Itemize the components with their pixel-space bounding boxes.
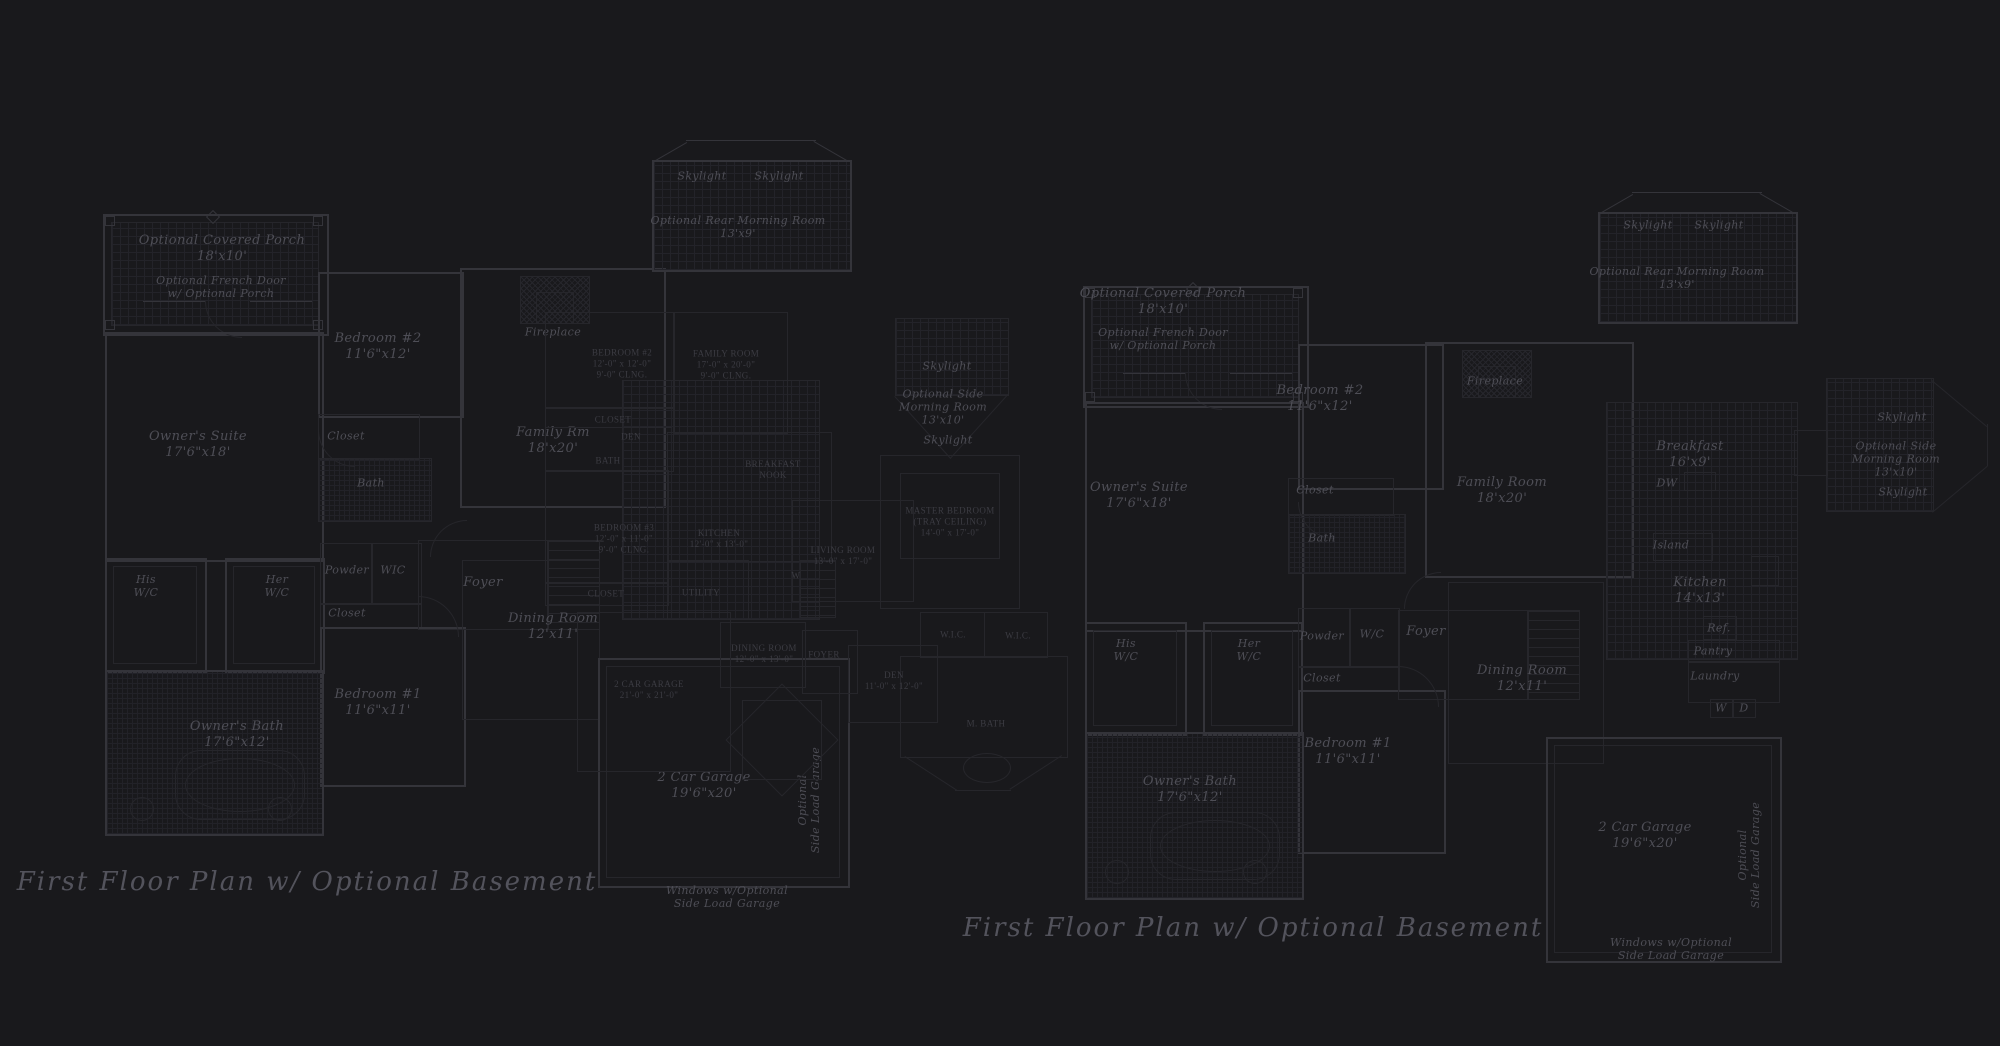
left-side-morning-room-label: Optional Side Morning Room 13'x10' <box>899 388 987 427</box>
left-porch-post <box>105 216 115 226</box>
right-covered-porch-label: Optional Covered Porch 18'x10' <box>1080 286 1247 318</box>
overlay-garage-label: 2 CAR GARAGE 21'-0" x 21'-0" <box>614 679 684 701</box>
overlay-wall <box>984 612 985 656</box>
left-toilet-fixture <box>130 797 154 821</box>
left-wic-label: WIC <box>380 564 405 577</box>
door-arc <box>1404 572 1441 609</box>
overlay-washer-label: W <box>792 571 801 582</box>
overlay-dining-room-label: DINING ROOM 12'-0" x 13'-0" <box>731 643 797 665</box>
right-rear-morning-room-label: Optional Rear Morning Room 13'x9' <box>1589 265 1764 291</box>
right-washer-label: W <box>1715 702 1727 715</box>
right-bedroom2-outline <box>1298 344 1444 490</box>
left-rear-morning-room-label: Optional Rear Morning Room 13'x9' <box>650 214 825 240</box>
right-skylight-label: Skylight <box>1694 219 1743 232</box>
right-side-skylight-label: Skylight <box>1878 486 1927 499</box>
overlay-breakfast-nook-label: BREAKFAST NOOK <box>745 459 800 481</box>
right-breakfast-label: Breakfast 16'x9' <box>1656 439 1723 471</box>
left-skylight-label: Skylight <box>754 170 803 183</box>
left-porch-post <box>105 320 115 330</box>
right-side-skylight-label: Skylight <box>1877 411 1926 424</box>
door-arc <box>430 520 467 557</box>
overlay-wic-label: W.I.C. <box>940 630 966 641</box>
right-pantry-cabinet <box>1751 556 1779 586</box>
left-french-door-label: Optional French Door w/ Optional Porch <box>156 274 286 300</box>
left-morning-room-top-wall <box>686 140 816 141</box>
right-bedroom1-outline <box>1298 690 1446 854</box>
right-dishwasher <box>1684 472 1716 491</box>
right-skylight-label: Skylight <box>1623 219 1672 232</box>
right-french-door-label: Optional French Door w/ Optional Porch <box>1098 326 1228 352</box>
right-pantry-label: Pantry <box>1694 645 1733 658</box>
left-side-skylight-label: Skylight <box>922 360 971 373</box>
overlay-garden-tub <box>963 753 1011 783</box>
overlay-wall <box>545 427 672 428</box>
overlay-bath-label: BATH <box>595 456 620 467</box>
overlay-den-label: DEN 11'-0" x 12'-0" <box>865 670 923 692</box>
left-covered-porch-label: Optional Covered Porch 18'x10' <box>139 233 306 265</box>
right-porch-post <box>1293 288 1303 298</box>
overlay-closet-label: CLOSET <box>595 415 631 426</box>
right-toilet-fixture <box>1243 860 1267 884</box>
right-kitchen-label: Kitchen 14'x13' <box>1673 575 1727 607</box>
right-owners-bath-label: Owner's Bath 17'6"x12' <box>1143 774 1237 806</box>
right-powder-label: Powder <box>1300 630 1344 643</box>
overlay-stairs <box>800 560 836 618</box>
right-side-bay-connector <box>1794 430 1828 476</box>
right-side-morning-room-label: Optional Side Morning Room 13'x10' <box>1852 440 1940 479</box>
right-side-load-garage-label: Optional Side Load Garage <box>1736 802 1762 908</box>
overlay-master-bedroom-label: MASTER BEDROOM (TRAY CEILING) 14'-0" x 1… <box>905 506 994 539</box>
overlay-bath-bay-wall <box>955 790 1011 791</box>
floor-plan-sheet: Optional Covered Porch 18'x10' Optional … <box>0 0 2000 1046</box>
overlay-master-bath-label: M. BATH <box>967 719 1006 730</box>
right-family-room-label: Family Room 18'x20' <box>1457 475 1547 507</box>
left-foyer-label: Foyer <box>463 575 502 591</box>
right-garage-label: 2 Car Garage 19'6"x20' <box>1598 820 1691 852</box>
left-plan-title: First Floor Plan w/ Optional Basement <box>17 867 598 897</box>
left-powder-label: Powder <box>325 564 369 577</box>
right-ref-label: Ref. <box>1707 622 1731 635</box>
french-door-wall <box>143 301 205 302</box>
right-bedroom1-label: Bedroom #1 11'6"x11' <box>1304 736 1391 768</box>
left-garage-label: 2 Car Garage 19'6"x20' <box>657 770 750 802</box>
right-side-bay-chamfer <box>1931 380 1987 427</box>
right-side-bay-chamfer <box>1932 466 1988 513</box>
left-bedroom1-label: Bedroom #1 11'6"x11' <box>334 687 421 719</box>
right-porch-post <box>1085 392 1095 402</box>
right-bath-label: Bath <box>1308 532 1336 545</box>
left-windows-note-label: Windows w/Optional Side Load Garage <box>666 884 788 910</box>
left-morning-room-chamfer <box>814 141 849 162</box>
right-toilet-fixture <box>1105 860 1129 884</box>
right-his-wc-label: His W/C <box>1114 637 1139 663</box>
overlay-foyer-outline <box>802 630 858 694</box>
overlay-kitchen-label: KITCHEN 12'-0" x 13'-0" <box>690 528 749 550</box>
right-windows-note-label: Windows w/Optional Side Load Garage <box>1610 936 1732 962</box>
right-laundry-label: Laundry <box>1690 670 1739 683</box>
left-side-skylight-label: Skylight <box>923 434 972 447</box>
left-toilet-fixture <box>268 797 292 821</box>
left-hall-closet-label: Closet <box>328 607 366 620</box>
overlay-wic-label: W.I.C. <box>1005 631 1031 642</box>
overlay-foyer-label: FOYER <box>808 650 840 661</box>
right-bedroom2-label: Bedroom #2 11'6"x12' <box>1276 383 1363 415</box>
overlay-family-room-label: FAMILY ROOM 17'-0" x 20'-0" 9'-0" CLNG. <box>693 349 759 382</box>
overlay-den-small-label: DEN <box>621 432 641 443</box>
right-owners-suite-label: Owner's Suite 17'6"x18' <box>1090 480 1188 512</box>
french-door-wall <box>1123 373 1185 374</box>
right-side-bay-edge <box>1987 424 1988 466</box>
overlay-closet-label: CLOSET <box>588 589 624 600</box>
left-bedroom2-closet-label: Closet <box>327 430 365 443</box>
overlay-living-room-label: LIVING ROOM 13'-0" x 17'-0" <box>811 545 876 567</box>
right-foyer-label: Foyer <box>1406 624 1445 640</box>
right-morning-room-chamfer <box>1760 193 1795 214</box>
overlay-utility-label: UTILITY <box>682 588 720 599</box>
left-his-wc-label: His W/C <box>134 573 159 599</box>
left-bedroom2-label: Bedroom #2 11'6"x12' <box>334 331 421 363</box>
right-island-label: Island <box>1653 539 1690 552</box>
right-her-wc-label: Her W/C <box>1237 637 1262 663</box>
right-wic-label: W/C <box>1360 628 1385 641</box>
left-bath-outline <box>318 458 432 522</box>
overlay-bath-bay-chamfer <box>1009 755 1062 790</box>
right-fireplace-label: Fireplace <box>1467 375 1523 388</box>
right-plan-title: First Floor Plan w/ Optional Basement <box>963 913 1544 943</box>
right-owners-suite-outline <box>1085 402 1304 632</box>
left-side-bay-outline <box>895 318 1009 396</box>
right-morning-room-top-wall <box>1632 192 1762 193</box>
french-door-wall <box>250 301 312 302</box>
right-dw-label: DW <box>1657 477 1678 490</box>
right-hall-closet-label: Closet <box>1303 672 1341 685</box>
french-door-wall <box>1230 373 1292 374</box>
left-owners-bath-label: Owner's Bath 17'6"x12' <box>190 719 284 751</box>
overlay-bath-bay-chamfer <box>904 756 957 791</box>
left-bath-label: Bath <box>357 477 385 490</box>
right-dining-room-label: Dining Room 12'x11' <box>1477 663 1567 695</box>
left-skylight-label: Skylight <box>677 170 726 183</box>
overlay-bedroom2-label: BEDROOM #2 12'-0" x 12'-0" 9'-0" CLNG. <box>592 348 652 381</box>
left-porch-post <box>313 216 323 226</box>
right-bedroom2-closet-label: Closet <box>1296 484 1334 497</box>
left-owners-suite-label: Owner's Suite 17'6"x18' <box>149 429 247 461</box>
right-dryer-label: D <box>1739 702 1748 715</box>
overlay-bedroom3-label: BEDROOM #3 12'-0" x 11'-0" 9'-0" CLNG. <box>594 523 654 556</box>
left-her-wc-label: Her W/C <box>265 573 290 599</box>
